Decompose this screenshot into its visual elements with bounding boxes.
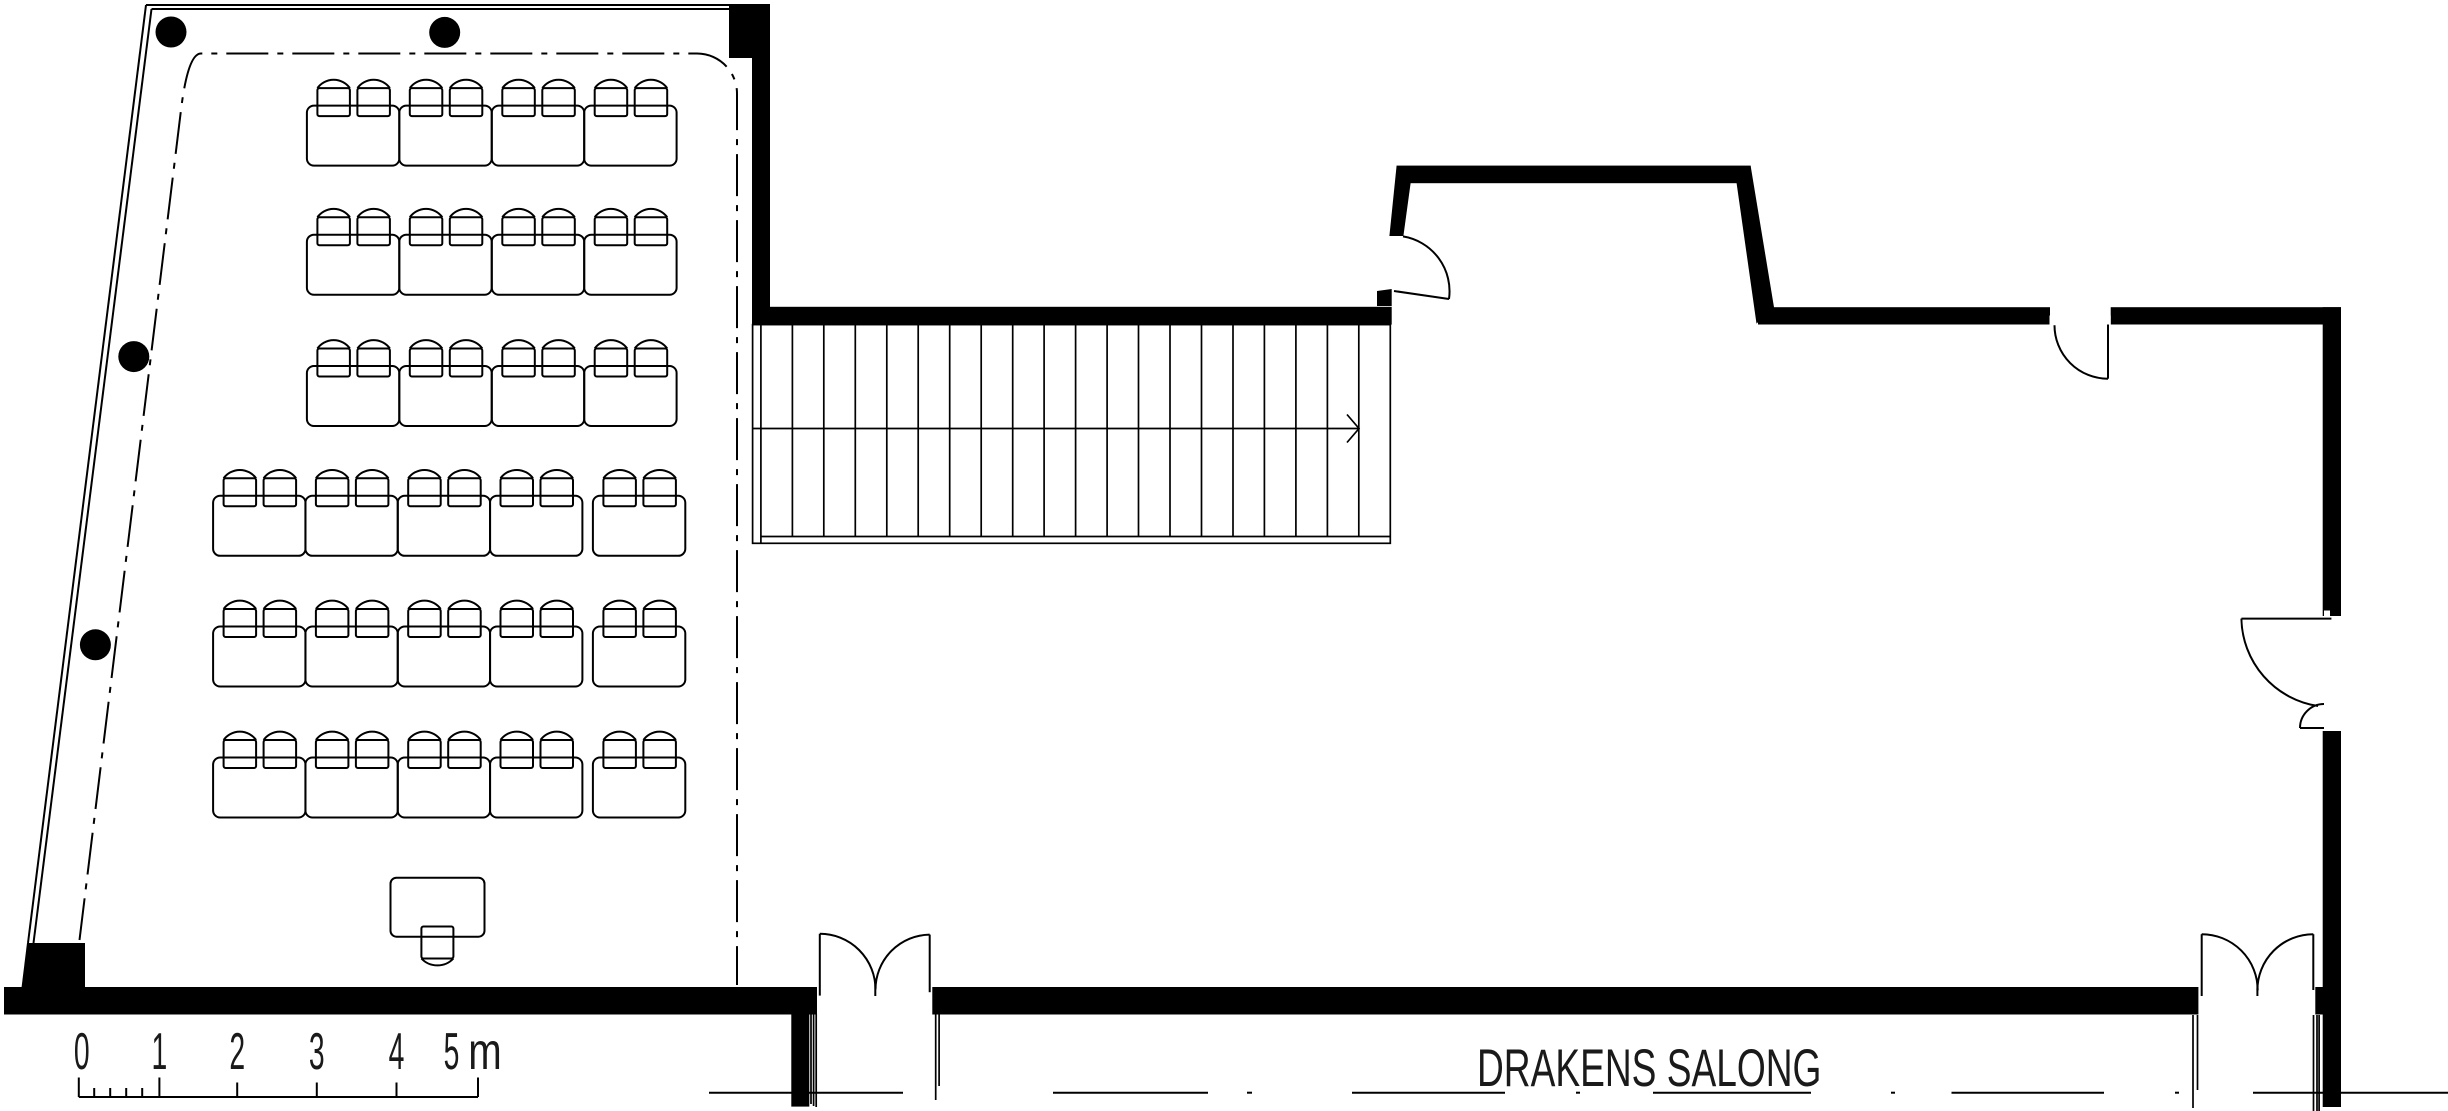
svg-text:4: 4: [389, 1022, 405, 1080]
svg-text:5: 5: [444, 1022, 460, 1080]
svg-text:3: 3: [309, 1022, 325, 1080]
svg-text:2: 2: [229, 1022, 245, 1080]
svg-text:0: 0: [74, 1022, 90, 1080]
svg-text:m: m: [468, 1022, 501, 1080]
svg-text:1: 1: [152, 1022, 168, 1080]
svg-text:DRAKENS SALONG: DRAKENS SALONG: [1477, 1039, 1821, 1098]
